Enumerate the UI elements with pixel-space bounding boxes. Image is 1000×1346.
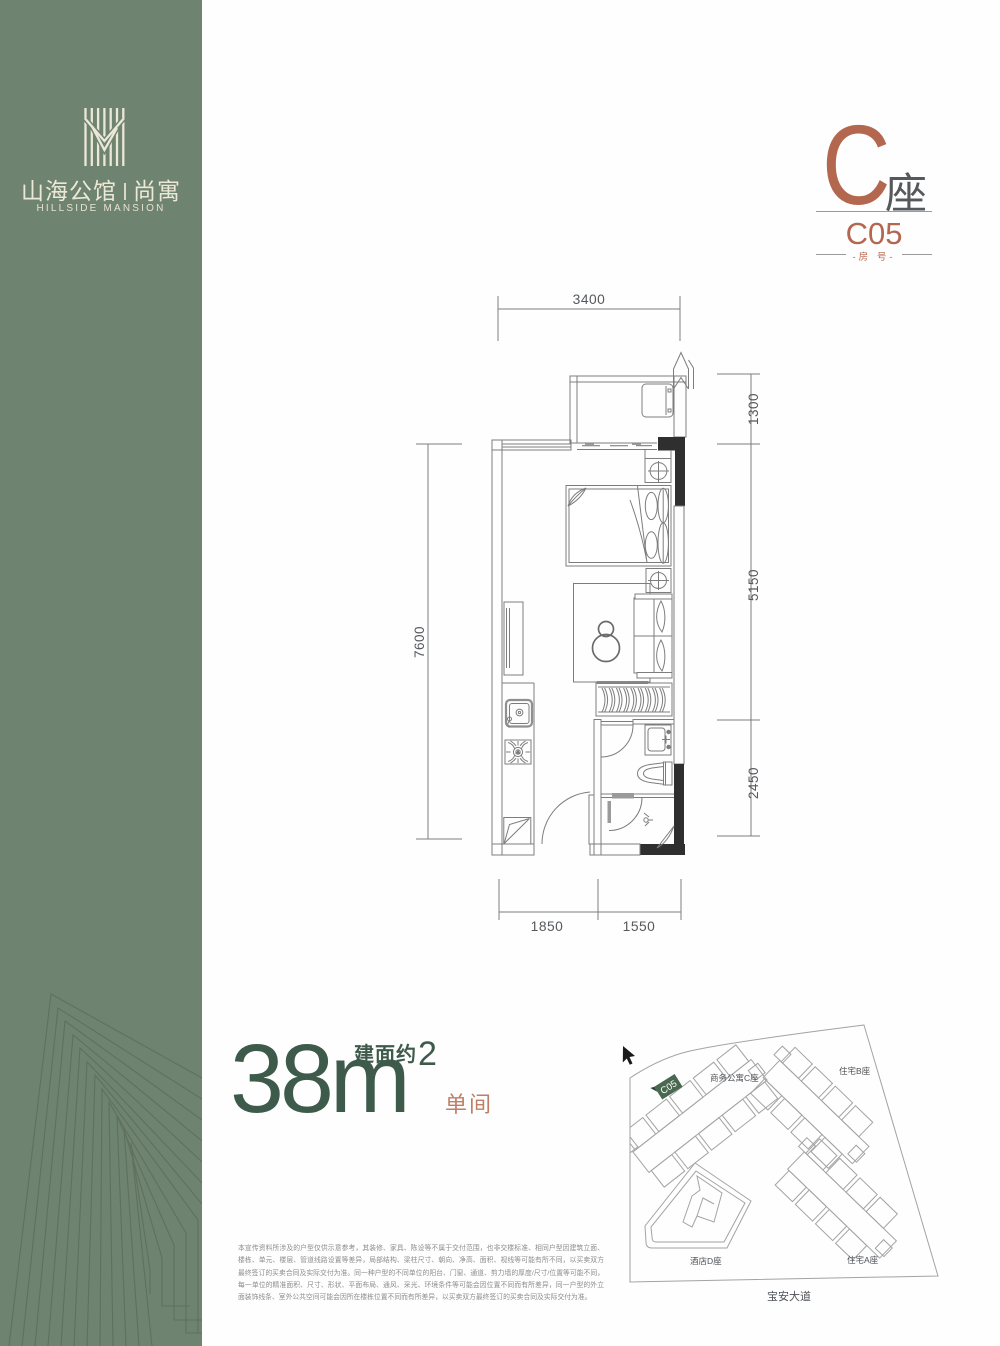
svg-text:商务公寓C座: 商务公寓C座: [710, 1073, 759, 1083]
svg-text:宝安大道: 宝安大道: [767, 1289, 811, 1303]
svg-text:1850: 1850: [531, 919, 564, 934]
svg-text:住宅A座: 住宅A座: [847, 1255, 879, 1265]
svg-text:住宅B座: 住宅B座: [839, 1066, 871, 1076]
svg-text:3400: 3400: [573, 292, 606, 307]
svg-text:1550: 1550: [623, 919, 656, 934]
svg-text:酒店D座: 酒店D座: [690, 1256, 722, 1266]
svg-text:1300: 1300: [746, 393, 761, 425]
svg-text:7600: 7600: [412, 626, 427, 658]
svg-text:5150: 5150: [746, 569, 761, 601]
svg-text:2450: 2450: [746, 767, 761, 799]
